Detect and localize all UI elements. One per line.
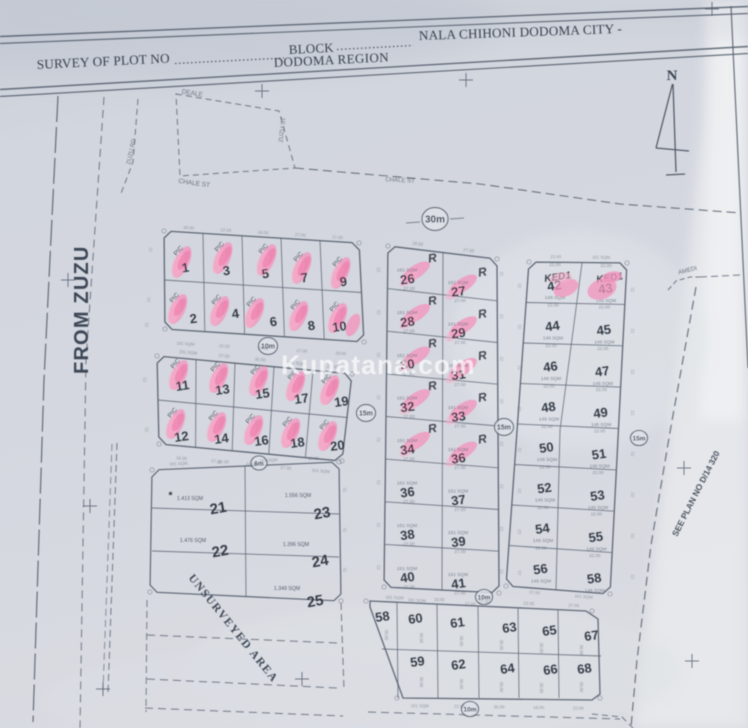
svg-text:30m: 30m	[425, 215, 445, 226]
svg-text:49: 49	[592, 404, 608, 421]
svg-text:46: 46	[542, 358, 558, 375]
svg-text:17: 17	[293, 390, 309, 407]
svg-text:30.00: 30.00	[419, 677, 424, 688]
svg-text:27.00: 27.00	[454, 340, 466, 345]
svg-text:22.00: 22.00	[597, 346, 609, 351]
svg-text:27.00: 27.00	[454, 298, 466, 303]
svg-text:67: 67	[583, 627, 599, 644]
svg-text:27.00: 27.00	[454, 465, 466, 470]
svg-text:22.00: 22.00	[589, 553, 601, 558]
svg-text:61: 61	[449, 614, 465, 631]
svg-text:146 SQM: 146 SQM	[593, 381, 613, 387]
svg-text:30.00: 30.00	[499, 682, 504, 693]
svg-text:15m: 15m	[497, 425, 511, 432]
svg-text:161 SQM: 161 SQM	[397, 481, 417, 487]
svg-text:161 SQM: 161 SQM	[448, 572, 468, 578]
svg-text:27.00: 27.00	[454, 549, 466, 554]
svg-text:10: 10	[331, 318, 347, 335]
svg-text:161 SQM: 161 SQM	[259, 457, 278, 463]
svg-text:13: 13	[214, 381, 230, 398]
svg-text:21: 21	[209, 499, 228, 519]
svg-text:30.00: 30.00	[539, 683, 544, 694]
svg-text:27.00: 27.00	[568, 603, 580, 609]
svg-text:63: 63	[501, 619, 517, 636]
svg-text:27.00: 27.00	[465, 601, 477, 607]
svg-text:27.00: 27.00	[403, 584, 415, 589]
svg-text:22.00: 22.00	[537, 505, 549, 510]
svg-text:64: 64	[499, 660, 516, 677]
svg-text:22.00: 22.00	[591, 511, 603, 516]
svg-text:66: 66	[542, 661, 558, 678]
svg-text:146 SQM: 146 SQM	[531, 579, 551, 585]
svg-text:55: 55	[588, 529, 604, 546]
svg-text:50: 50	[538, 439, 554, 456]
svg-text:30.00: 30.00	[183, 225, 195, 231]
svg-text:23: 23	[313, 504, 332, 524]
svg-text:10m: 10m	[463, 706, 476, 713]
svg-text:161 SQM: 161 SQM	[397, 438, 417, 444]
svg-text:30.00: 30.00	[494, 704, 505, 709]
svg-text:146 SQM: 146 SQM	[533, 538, 553, 544]
svg-text:25: 25	[306, 592, 325, 612]
svg-text:161 SQM: 161 SQM	[385, 595, 404, 601]
svg-text:146 SQM: 146 SQM	[535, 498, 555, 504]
svg-text:53: 53	[589, 487, 605, 504]
svg-text:146 SQM: 146 SQM	[585, 588, 605, 594]
svg-text:51: 51	[591, 446, 607, 463]
svg-text:62: 62	[450, 656, 466, 673]
svg-text:27.00: 27.00	[403, 499, 415, 504]
svg-text:12: 12	[173, 428, 189, 445]
svg-text:22: 22	[211, 542, 230, 562]
svg-text:161 SQM: 161 SQM	[448, 405, 468, 411]
svg-text:14: 14	[213, 430, 230, 447]
svg-text:22.00: 22.00	[549, 262, 561, 267]
svg-text:22.00: 22.00	[523, 601, 535, 607]
svg-text:30.00: 30.00	[579, 682, 584, 693]
svg-text:19: 19	[333, 393, 349, 410]
svg-text:11: 11	[175, 377, 191, 394]
svg-text:27.00: 27.00	[479, 599, 491, 605]
svg-text:22.00: 22.00	[539, 465, 551, 470]
svg-text:45: 45	[596, 322, 612, 339]
svg-text:65: 65	[541, 622, 557, 639]
svg-text:1.396 SQM: 1.396 SQM	[283, 542, 309, 548]
svg-text:161 SQM: 161 SQM	[397, 310, 417, 316]
svg-text:1.413 SQM: 1.413 SQM	[177, 496, 203, 502]
svg-text:161 SQM: 161 SQM	[448, 489, 468, 495]
svg-text:48: 48	[540, 399, 556, 416]
svg-text:161 SQM: 161 SQM	[169, 461, 188, 467]
svg-text:146 SQM: 146 SQM	[589, 464, 609, 470]
svg-text:22.00: 22.00	[547, 303, 559, 308]
svg-text:58: 58	[586, 570, 602, 587]
svg-text:44: 44	[544, 318, 561, 335]
svg-text:22.00: 22.00	[246, 462, 258, 468]
svg-text:20: 20	[329, 437, 345, 454]
svg-text:22.00: 22.00	[545, 343, 557, 348]
svg-text:27.00: 27.00	[403, 329, 415, 334]
svg-text:15: 15	[254, 385, 270, 402]
svg-text:27.00: 27.00	[218, 459, 230, 464]
svg-text:27.00: 27.00	[529, 590, 541, 596]
svg-text:27.00: 27.00	[403, 414, 415, 419]
svg-text:15m: 15m	[632, 435, 645, 442]
svg-text:161 SQM: 161 SQM	[397, 395, 417, 401]
svg-text:27.00: 27.00	[454, 424, 466, 429]
svg-text:18: 18	[289, 434, 305, 451]
svg-text:22.00: 22.00	[541, 424, 553, 429]
svg-text:27.00: 27.00	[403, 457, 415, 462]
svg-text:Kupatana.com: Kupatana.com	[281, 350, 476, 380]
svg-text:146 SQM: 146 SQM	[586, 546, 606, 552]
svg-text:58: 58	[374, 608, 390, 625]
svg-text:18.00: 18.00	[434, 597, 446, 603]
svg-text:FROM ZUZU: FROM ZUZU	[71, 245, 93, 374]
svg-text:27.00: 27.00	[454, 591, 466, 596]
svg-text:60: 60	[407, 610, 423, 627]
svg-text:22.00: 22.00	[596, 387, 608, 392]
svg-text:59: 59	[409, 653, 425, 670]
svg-text:1.476 SQM: 1.476 SQM	[180, 538, 206, 544]
svg-text:27.00: 27.00	[332, 234, 344, 240]
svg-text:56: 56	[532, 561, 548, 578]
svg-text:15m: 15m	[359, 411, 373, 418]
svg-text:146 SQM: 146 SQM	[594, 339, 614, 345]
svg-text:27.00: 27.00	[403, 542, 415, 547]
svg-text:22.00: 22.00	[550, 254, 561, 259]
svg-text:1.556 SQM: 1.556 SQM	[285, 493, 311, 499]
svg-text:146 SQM: 146 SQM	[591, 422, 611, 428]
svg-text:27.00: 27.00	[258, 346, 270, 352]
svg-text:27.00: 27.00	[280, 465, 292, 471]
svg-text:30.00: 30.00	[419, 633, 424, 644]
svg-text:54: 54	[534, 520, 551, 537]
svg-text:30.00: 30.00	[539, 643, 544, 654]
svg-text:161 SQM: 161 SQM	[448, 280, 468, 286]
svg-text:22.00: 22.00	[535, 546, 547, 551]
svg-text:47: 47	[594, 363, 610, 380]
svg-text:27.00: 27.00	[295, 232, 307, 238]
svg-text:52: 52	[536, 480, 552, 497]
svg-text:22.00: 22.00	[543, 384, 555, 389]
svg-text:27.00: 27.00	[403, 286, 415, 291]
svg-text:30.00: 30.00	[308, 456, 320, 461]
svg-text:18.00: 18.00	[533, 705, 544, 710]
svg-text:27.00: 27.00	[454, 507, 466, 512]
svg-text:146 SQM: 146 SQM	[539, 417, 559, 423]
svg-text:146 SQM: 146 SQM	[541, 376, 561, 382]
svg-text:161 SQM: 161 SQM	[592, 255, 611, 260]
svg-text:16: 16	[253, 432, 269, 449]
svg-text:18.00: 18.00	[258, 230, 270, 236]
svg-text:22.00: 22.00	[599, 304, 611, 309]
svg-text:1.349 SQM: 1.349 SQM	[274, 586, 300, 592]
svg-text:22.00: 22.00	[454, 704, 465, 709]
svg-text:22.00: 22.00	[600, 263, 612, 268]
svg-text:161 SQM: 161 SQM	[411, 703, 430, 708]
svg-text:146 SQM: 146 SQM	[588, 505, 608, 511]
svg-text:161 SQM: 161 SQM	[397, 523, 417, 529]
svg-text:27.00: 27.00	[454, 382, 466, 387]
svg-text:161 SQM: 161 SQM	[448, 322, 468, 328]
svg-text:30.00: 30.00	[499, 640, 504, 651]
svg-text:30.00: 30.00	[459, 679, 464, 690]
svg-text:146 SQM: 146 SQM	[543, 336, 563, 342]
svg-text:161 SQM: 161 SQM	[448, 530, 468, 536]
svg-text:22.00: 22.00	[573, 706, 584, 711]
svg-text:22.00: 22.00	[594, 429, 606, 434]
svg-text:68: 68	[576, 660, 592, 677]
svg-text:146 SQM: 146 SQM	[537, 457, 557, 463]
svg-text:22.00: 22.00	[220, 227, 232, 233]
svg-text:30.00: 30.00	[384, 630, 389, 641]
svg-text:161 SQM: 161 SQM	[448, 447, 468, 453]
svg-text:22.00: 22.00	[219, 343, 231, 349]
svg-text:N: N	[667, 68, 678, 84]
svg-text:161 SQM: 161 SQM	[397, 268, 417, 274]
svg-text:30.00: 30.00	[459, 636, 464, 647]
svg-text:161 SQM: 161 SQM	[397, 566, 417, 572]
svg-text:30.00: 30.00	[579, 645, 584, 656]
svg-text:22.00: 22.00	[592, 470, 604, 475]
